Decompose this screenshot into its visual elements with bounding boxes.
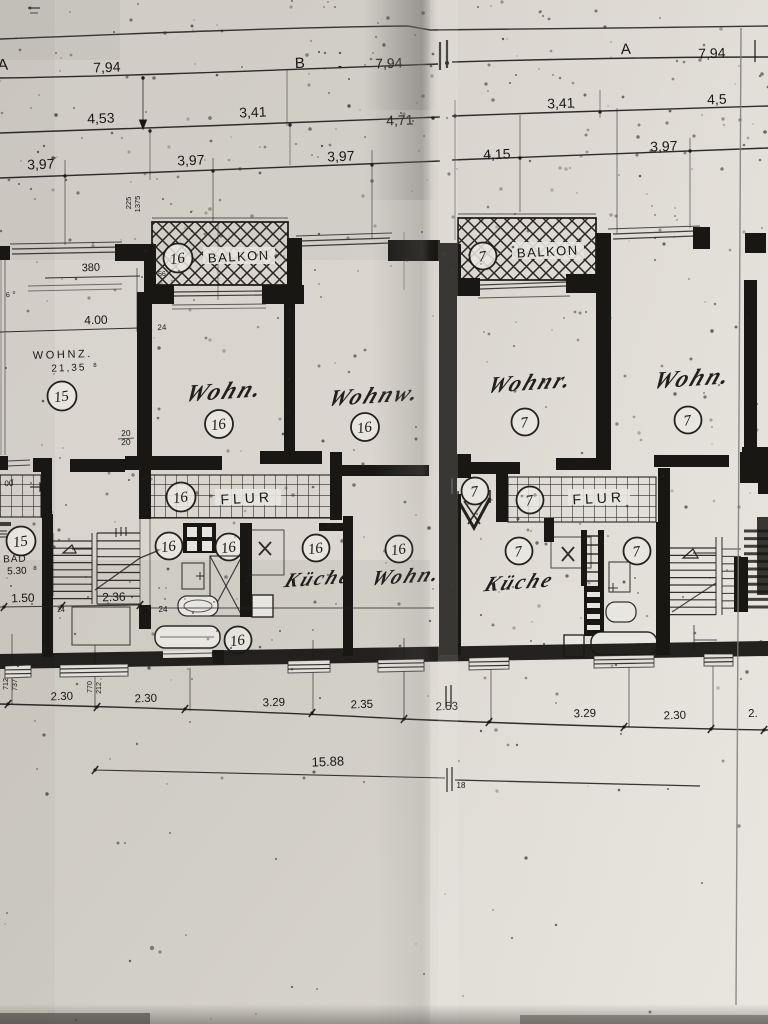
svg-text:21,35: 21,35 bbox=[51, 362, 86, 374]
svg-text:FLUR: FLUR bbox=[220, 489, 273, 508]
svg-text:15.88: 15.88 bbox=[311, 753, 344, 769]
svg-text:2.30: 2.30 bbox=[663, 710, 686, 723]
svg-text:A: A bbox=[621, 41, 632, 58]
svg-text:24: 24 bbox=[157, 323, 167, 332]
svg-text:24: 24 bbox=[57, 607, 65, 614]
svg-text:16: 16 bbox=[172, 489, 190, 507]
svg-text:B: B bbox=[295, 55, 306, 72]
svg-text:770: 770 bbox=[87, 681, 94, 693]
svg-text:2.35: 2.35 bbox=[350, 699, 373, 712]
svg-text:4,53: 4,53 bbox=[87, 110, 115, 127]
svg-text:3,97: 3,97 bbox=[177, 152, 205, 169]
svg-text:16: 16 bbox=[220, 539, 238, 557]
svg-text:56: 56 bbox=[158, 271, 166, 278]
svg-text:3.29: 3.29 bbox=[573, 708, 596, 721]
svg-text:380: 380 bbox=[82, 262, 101, 275]
svg-text:2.: 2. bbox=[748, 708, 758, 720]
svg-text:5.30: 5.30 bbox=[7, 566, 27, 578]
svg-text:16: 16 bbox=[169, 250, 187, 268]
svg-text:15: 15 bbox=[53, 388, 71, 406]
svg-text:6: 6 bbox=[6, 292, 10, 299]
svg-text:2.36: 2.36 bbox=[102, 590, 126, 605]
svg-text:4,15: 4,15 bbox=[483, 146, 511, 163]
svg-text:7,94: 7,94 bbox=[93, 59, 121, 76]
svg-text:1375: 1375 bbox=[133, 196, 142, 213]
svg-text:16: 16 bbox=[356, 419, 374, 437]
svg-text:4,5: 4,5 bbox=[707, 91, 727, 108]
svg-text:7,94: 7,94 bbox=[698, 45, 726, 62]
svg-text:3,41: 3,41 bbox=[239, 104, 267, 121]
svg-text:15: 15 bbox=[12, 533, 30, 551]
svg-text:225: 225 bbox=[124, 197, 133, 210]
svg-text:FLUR: FLUR bbox=[572, 489, 625, 508]
svg-text:3.29: 3.29 bbox=[262, 697, 285, 710]
svg-text:712: 712 bbox=[3, 678, 10, 690]
svg-text:-: - bbox=[337, 58, 342, 73]
svg-text:737: 737 bbox=[12, 679, 19, 691]
svg-text:o: o bbox=[12, 290, 15, 296]
svg-text:2.30: 2.30 bbox=[134, 693, 157, 706]
svg-text:16: 16 bbox=[160, 538, 178, 556]
svg-text:3,97: 3,97 bbox=[327, 148, 355, 165]
svg-text:212: 212 bbox=[96, 682, 103, 694]
svg-text:16: 16 bbox=[307, 540, 325, 558]
svg-text:4.00: 4.00 bbox=[84, 313, 108, 328]
svg-text:24: 24 bbox=[159, 605, 168, 614]
svg-text:16: 16 bbox=[210, 416, 228, 434]
svg-text:3,97: 3,97 bbox=[27, 156, 55, 173]
svg-text:BAD: BAD bbox=[3, 554, 27, 566]
svg-text:2.30: 2.30 bbox=[50, 691, 73, 704]
svg-text:WOHNZ.: WOHNZ. bbox=[33, 348, 94, 362]
svg-text:3,41: 3,41 bbox=[547, 95, 575, 112]
svg-text:3,97: 3,97 bbox=[650, 138, 678, 155]
